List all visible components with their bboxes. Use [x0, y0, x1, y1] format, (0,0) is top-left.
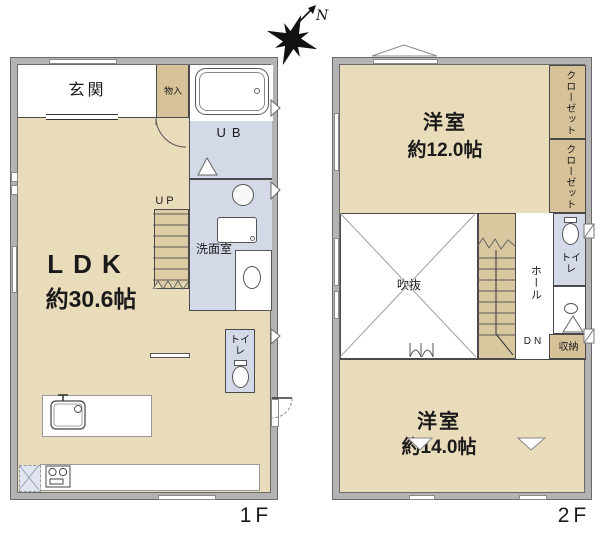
- stairs-down: [478, 213, 516, 359]
- toilet-1f-label: トイレ: [228, 333, 252, 359]
- floor-plan-2f: 洋室 約12.0帖 クローゼット クローゼット 吹抜 ホール DN: [332, 57, 592, 500]
- compass-north-arrow: [299, 7, 314, 22]
- room-toilet-2f: トイレ: [553, 213, 586, 286]
- closet-top: クローゼット: [549, 65, 586, 139]
- room-storage-1f: 物入: [157, 65, 189, 118]
- window-2f-north: [373, 59, 438, 64]
- toilet-2f-bowl: [562, 223, 579, 245]
- washer-pan-drain: [250, 236, 255, 241]
- bedroom-14-top-wall: [340, 359, 586, 360]
- washing-machine: [232, 184, 254, 206]
- window-2f-south-b: [519, 495, 547, 500]
- bedroom-14-size-label: 約14.0帖: [354, 436, 524, 460]
- ldk-counter-bar: [150, 353, 190, 358]
- closet-bottom-label: クローゼット: [561, 142, 577, 212]
- window-2f-south-a: [409, 495, 435, 500]
- bedroom-14-label: 洋室: [364, 408, 514, 436]
- entrance-label: 玄関: [18, 65, 157, 118]
- toilet-1f-bowl: [232, 366, 249, 388]
- void-label: 吹抜: [379, 278, 439, 294]
- storage-1f-label: 物入: [157, 65, 189, 118]
- north-label: N: [315, 8, 329, 24]
- washer-pan: [217, 217, 257, 243]
- storage-2f-label: 収納: [550, 335, 587, 360]
- vanity-sink: [243, 266, 261, 289]
- room-bath: UB: [189, 65, 272, 179]
- hall: ホール DN: [516, 213, 553, 359]
- washroom-label: 洗面室: [181, 242, 247, 258]
- floor-plan-page: 玄関 物入 UB: [0, 0, 600, 535]
- door-gap-1f-east: [271, 399, 279, 427]
- basin-sink: [564, 303, 578, 314]
- window-1f-north: [49, 59, 117, 64]
- basin-area: [553, 286, 586, 334]
- compass-north-arrowhead: [308, 5, 316, 14]
- kitchen-counter: [40, 464, 260, 491]
- compass-star-small: [276, 24, 309, 57]
- window-1f-west: [12, 246, 17, 293]
- window-2f-west-a: [334, 113, 339, 171]
- ldk-label: LDK: [24, 249, 154, 281]
- room-storage-2f: 収納: [549, 334, 586, 359]
- floor-label-2f: 2F: [552, 503, 596, 529]
- window-2f-north-awning: [372, 45, 437, 56]
- bath-label: UB: [190, 123, 273, 143]
- stairs-up: [154, 209, 189, 289]
- void-area: 吹抜: [340, 213, 478, 359]
- hall-label: ホール: [528, 255, 542, 311]
- floor-2f-interior: 洋室 約12.0帖 クローゼット クローゼット 吹抜 ホール DN: [339, 64, 585, 493]
- room-entrance: 玄関: [18, 65, 157, 118]
- vanity: [235, 250, 272, 311]
- closet-top-label: クローゼット: [561, 68, 577, 138]
- bedroom-12-size-label: 約12.0帖: [360, 139, 530, 163]
- refrigerator-space: [19, 465, 41, 492]
- floor-plan-1f: 玄関 物入 UB: [10, 57, 278, 500]
- window-2f-west-b: [334, 238, 339, 286]
- toilet-2f-label: トイレ: [558, 247, 584, 281]
- bathtub-drain: [254, 88, 260, 94]
- bedroom-12-label: 洋室: [370, 109, 520, 137]
- vent-1f-west-b: [11, 185, 18, 195]
- room-washroom: 洗面室: [189, 179, 272, 311]
- stairs-up-label: UP: [146, 194, 186, 208]
- closet-bottom: クローゼット: [549, 139, 586, 213]
- entrance-sliding-door: [46, 114, 118, 120]
- compass-rose: N: [268, 5, 329, 64]
- vent-1f-west-a: [11, 172, 18, 182]
- bathtub: [195, 68, 269, 115]
- room-toilet-1f: トイレ: [225, 329, 255, 393]
- floor-label-1f: 1F: [234, 503, 278, 529]
- window-2f-west-c: [334, 291, 339, 319]
- kitchen-island: [42, 395, 152, 437]
- floor-1f-interior: 玄関 物入 UB: [17, 64, 271, 493]
- stairs-down-label: DN: [519, 335, 549, 349]
- ldk-size-label: 約30.6帖: [18, 285, 164, 313]
- window-1f-south: [158, 495, 216, 500]
